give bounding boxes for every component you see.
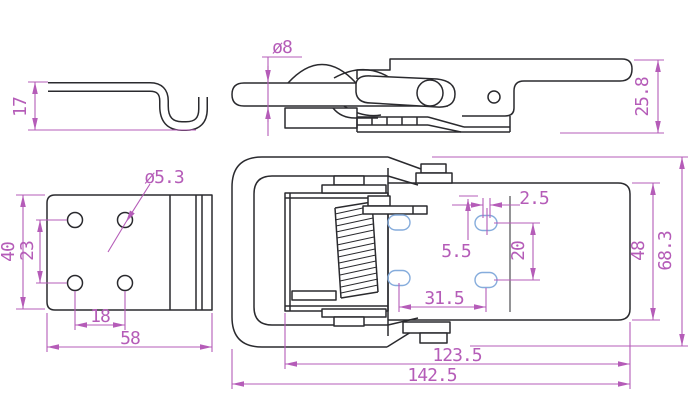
dim-hole-pitch-v: 23 xyxy=(17,220,67,283)
drawing-canvas: 17 ø8 25.8 xyxy=(0,0,698,413)
dim-hole-diameter: ø5.3 xyxy=(108,167,184,252)
dim-text-hole-pitch-h: 18 xyxy=(90,306,110,327)
pusher-bar xyxy=(363,206,427,214)
hook-profile-inner xyxy=(48,87,203,126)
spring-coil xyxy=(335,202,378,298)
dim-plate-width: 58 xyxy=(47,313,212,352)
spring-anchor-top xyxy=(368,196,390,206)
dim-text-overall-width: 68.3 xyxy=(655,231,676,271)
hook-side-view: 17 xyxy=(10,82,203,130)
dim-text-overall-length: 142.5 xyxy=(407,365,456,386)
dim-text-slot-pitch-h: 31.5 xyxy=(424,288,464,309)
dim-text-rod-diameter: ø8 xyxy=(272,37,292,58)
technical-drawing-page: 17 ø8 25.8 xyxy=(0,0,698,413)
dim-text-hook-height: 17 xyxy=(10,97,31,117)
dim-text-plate-width: 58 xyxy=(120,328,140,349)
mount-hole xyxy=(68,213,83,228)
boss-top-wide xyxy=(322,185,386,193)
plate-outline xyxy=(47,195,212,310)
rivet-hole xyxy=(488,91,500,103)
hook-profile-outline xyxy=(48,87,203,126)
boss-top-small xyxy=(334,176,364,185)
dim-slot-pitch-v: 20 xyxy=(494,223,540,280)
dim-text-body-width: 48 xyxy=(628,241,649,261)
dim-text-hole-diameter: ø5.3 xyxy=(144,167,184,188)
dim-text-hole-pitch-v: 23 xyxy=(17,241,38,261)
dim-text-side-height: 25.8 xyxy=(632,77,653,117)
spring-anchor-bottom xyxy=(292,291,336,300)
latch-top-view: 2.5 5.5 20 31.5 48 68.3 xyxy=(232,157,688,389)
dim-slot-offset: 2.5 xyxy=(452,188,549,235)
dim-slot-pitch-h: 31.5 xyxy=(399,283,486,312)
dim-text-slot-width: 5.5 xyxy=(441,241,471,262)
plate-bend-lines xyxy=(170,195,202,310)
boss-bottom-wide xyxy=(322,309,386,317)
latch-side-view: ø8 25.8 xyxy=(232,37,664,136)
dim-side-height: 25.8 xyxy=(560,60,664,133)
boss-bottom-small xyxy=(334,317,364,326)
dim-text-slot-offset: 2.5 xyxy=(519,188,549,209)
tongue-top-small xyxy=(421,164,446,173)
spring-housing-side xyxy=(285,108,357,128)
mount-slot xyxy=(475,273,497,288)
mount-slot xyxy=(388,215,410,230)
mount-slot xyxy=(475,216,497,231)
base-strip-side xyxy=(357,116,510,132)
pivot-hole xyxy=(417,80,443,106)
tongue-bottom-small xyxy=(420,333,447,343)
dim-slot-width: 5.5 xyxy=(441,196,478,262)
dim-text-body-length: 123.5 xyxy=(432,345,481,366)
tongue-top-wide xyxy=(416,173,452,183)
dim-overall-length: 142.5 xyxy=(232,349,630,389)
dim-text-slot-pitch-v: 20 xyxy=(508,241,529,261)
mount-hole xyxy=(118,276,133,291)
mounting-plate-view: ø5.3 40 23 18 58 xyxy=(0,167,212,352)
mount-hole xyxy=(68,276,83,291)
tongue-bottom-wide xyxy=(403,322,450,333)
